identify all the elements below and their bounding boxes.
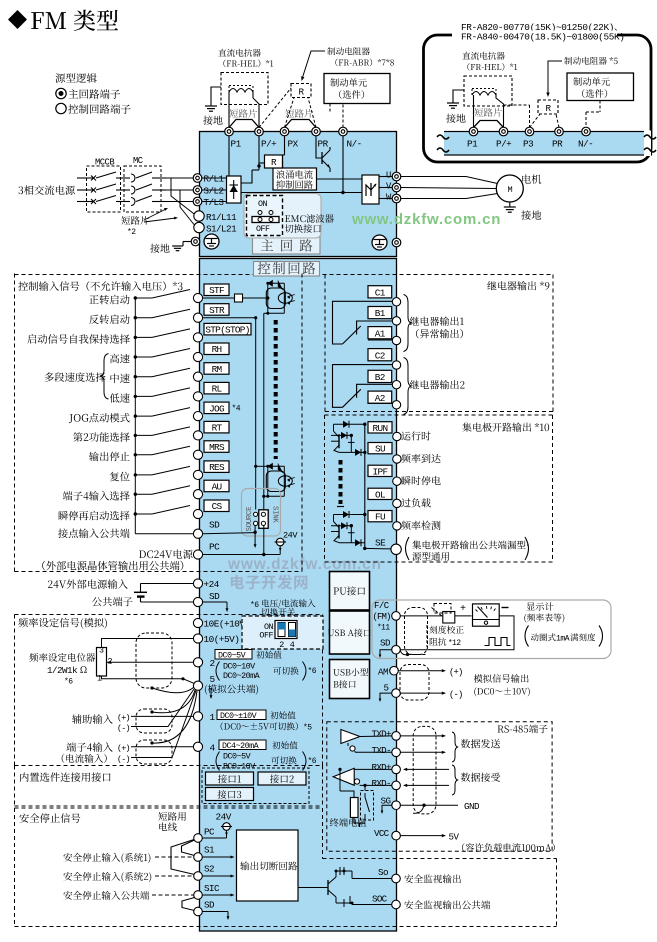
svg-text:SOURCE: SOURCE bbox=[246, 506, 254, 532]
svg-text:B2: B2 bbox=[375, 372, 385, 383]
svg-text:*5: *5 bbox=[303, 724, 312, 733]
svg-text:OL: OL bbox=[375, 489, 386, 500]
svg-text:PR: PR bbox=[552, 139, 563, 150]
svg-text:1mA: 1mA bbox=[556, 635, 570, 644]
svg-text:2: 2 bbox=[210, 658, 215, 669]
svg-text:RL: RL bbox=[212, 384, 223, 395]
svg-text:RT: RT bbox=[212, 423, 223, 434]
svg-text:PR: PR bbox=[318, 139, 329, 150]
svg-text:5: 5 bbox=[210, 674, 216, 685]
svg-text:FR-A840-00470(18.5K)~01800(55K: FR-A840-00470(18.5K)~01800(55K) bbox=[461, 32, 625, 43]
svg-text:R1/L11: R1/L11 bbox=[206, 212, 237, 223]
svg-text:P3: P3 bbox=[523, 139, 533, 150]
svg-text:*2: *2 bbox=[127, 228, 136, 237]
svg-text:SU: SU bbox=[375, 444, 385, 455]
svg-text:SINK: SINK bbox=[271, 506, 279, 523]
svg-text:P/+: P/+ bbox=[496, 139, 512, 150]
svg-text:ON: ON bbox=[258, 199, 268, 209]
svg-text:RES: RES bbox=[209, 462, 225, 473]
svg-text:R/L1: R/L1 bbox=[204, 174, 225, 185]
svg-text:STR: STR bbox=[209, 305, 225, 316]
svg-text:MRS: MRS bbox=[209, 442, 225, 453]
svg-text:DC0~20mA: DC0~20mA bbox=[223, 671, 261, 681]
svg-text:SD: SD bbox=[204, 900, 215, 911]
svg-text:PX: PX bbox=[288, 139, 299, 150]
svg-text:TXD+: TXD+ bbox=[372, 729, 391, 740]
svg-text:4: 4 bbox=[210, 742, 216, 753]
svg-text:DC0~10V: DC0~10V bbox=[223, 662, 255, 672]
svg-text:1/2W1k: 1/2W1k bbox=[47, 665, 78, 676]
svg-text:(-): (-) bbox=[117, 724, 130, 734]
svg-text:P1: P1 bbox=[231, 139, 242, 150]
svg-text:+: + bbox=[460, 604, 466, 615]
svg-text:P1: P1 bbox=[467, 139, 478, 150]
svg-text:C2: C2 bbox=[375, 350, 385, 361]
svg-text:RXD-: RXD- bbox=[372, 778, 391, 789]
svg-text:B1: B1 bbox=[375, 308, 386, 319]
svg-text:VCC: VCC bbox=[374, 828, 390, 839]
svg-text:4: 4 bbox=[290, 640, 295, 650]
svg-text:*12: *12 bbox=[448, 640, 461, 648]
svg-text:www.dzkfw.com.cn: www.dzkfw.com.cn bbox=[227, 556, 382, 573]
svg-text:A2: A2 bbox=[375, 393, 385, 404]
svg-text:(+): (+) bbox=[449, 667, 462, 677]
svg-text:2: 2 bbox=[279, 640, 284, 650]
svg-text:RH: RH bbox=[212, 344, 222, 355]
svg-text:CS: CS bbox=[212, 501, 223, 512]
svg-text:R: R bbox=[298, 87, 304, 98]
svg-text:www.dzkfw.com.cn: www.dzkfw.com.cn bbox=[351, 211, 501, 228]
svg-text:(-): (-) bbox=[449, 690, 462, 700]
svg-text:T/L3: T/L3 bbox=[204, 197, 224, 208]
svg-text:DC0~5V: DC0~5V bbox=[223, 752, 251, 762]
svg-text:(FM): (FM) bbox=[373, 612, 391, 622]
svg-text:S1: S1 bbox=[204, 845, 215, 856]
svg-text:MC: MC bbox=[133, 156, 143, 166]
svg-text:So: So bbox=[378, 867, 388, 878]
svg-text:P/+: P/+ bbox=[261, 139, 277, 150]
svg-text:OFF: OFF bbox=[256, 224, 270, 234]
svg-text:N/-: N/- bbox=[347, 139, 362, 150]
svg-text:S2: S2 bbox=[204, 864, 214, 875]
svg-text:FU: FU bbox=[375, 512, 385, 523]
svg-text:*4: *4 bbox=[232, 405, 241, 414]
svg-text:SE: SE bbox=[375, 538, 386, 549]
svg-text:F/C: F/C bbox=[374, 601, 390, 611]
svg-text:STP(STOP): STP(STOP) bbox=[205, 325, 249, 336]
svg-text:RXD+: RXD+ bbox=[372, 762, 391, 773]
svg-text:SD: SD bbox=[209, 520, 220, 531]
svg-text:A1: A1 bbox=[375, 328, 386, 339]
svg-text:S1/L21: S1/L21 bbox=[206, 224, 237, 235]
svg-text:JOG: JOG bbox=[209, 403, 225, 414]
svg-text:RM: RM bbox=[212, 364, 223, 375]
svg-text:IPF: IPF bbox=[372, 466, 387, 477]
svg-text:*6: *6 bbox=[308, 757, 317, 766]
svg-text:*6: *6 bbox=[308, 667, 317, 676]
svg-text:PC: PC bbox=[204, 827, 215, 838]
svg-text:24V: 24V bbox=[283, 531, 298, 541]
svg-text:DC0~±10V: DC0~±10V bbox=[220, 711, 257, 721]
svg-text:5V: 5V bbox=[449, 831, 460, 842]
svg-text:*6: *6 bbox=[250, 601, 259, 610]
svg-text:DC4~20mA: DC4~20mA bbox=[222, 741, 260, 751]
svg-text:DC0~10V: DC0~10V bbox=[223, 762, 255, 772]
svg-text:1: 1 bbox=[210, 712, 216, 723]
svg-text:C1: C1 bbox=[375, 287, 386, 298]
svg-text:RUN: RUN bbox=[372, 423, 387, 434]
svg-text:5: 5 bbox=[384, 683, 389, 694]
svg-text:SD: SD bbox=[380, 638, 391, 649]
svg-text:AU: AU bbox=[212, 481, 222, 492]
svg-text:DC0~5V: DC0~5V bbox=[218, 650, 246, 660]
svg-text:24V: 24V bbox=[216, 812, 232, 823]
svg-text:*11: *11 bbox=[377, 625, 390, 633]
svg-text:AM: AM bbox=[378, 666, 388, 677]
svg-text:(+): (+) bbox=[117, 713, 130, 723]
svg-text:GND: GND bbox=[464, 801, 480, 812]
svg-text:(+): (+) bbox=[117, 744, 130, 754]
svg-text:SIC: SIC bbox=[204, 883, 220, 894]
svg-text:+24: +24 bbox=[204, 579, 220, 590]
svg-text:OFF: OFF bbox=[259, 631, 273, 641]
svg-text:U: U bbox=[386, 171, 391, 181]
svg-text:*6: *6 bbox=[64, 678, 73, 687]
svg-text:SD: SD bbox=[209, 591, 220, 602]
svg-text:TXD-: TXD- bbox=[372, 745, 391, 756]
svg-text:N/-: N/- bbox=[578, 139, 593, 150]
svg-text:S/L2: S/L2 bbox=[204, 186, 224, 197]
svg-text:STF: STF bbox=[209, 285, 224, 296]
svg-text:(-): (-) bbox=[117, 755, 130, 765]
svg-text:M: M bbox=[507, 185, 512, 195]
svg-text:PC: PC bbox=[209, 542, 220, 553]
svg-text:SOC: SOC bbox=[372, 893, 388, 904]
svg-text:10(+5V): 10(+5V) bbox=[204, 634, 240, 645]
svg-text:R: R bbox=[545, 103, 551, 114]
